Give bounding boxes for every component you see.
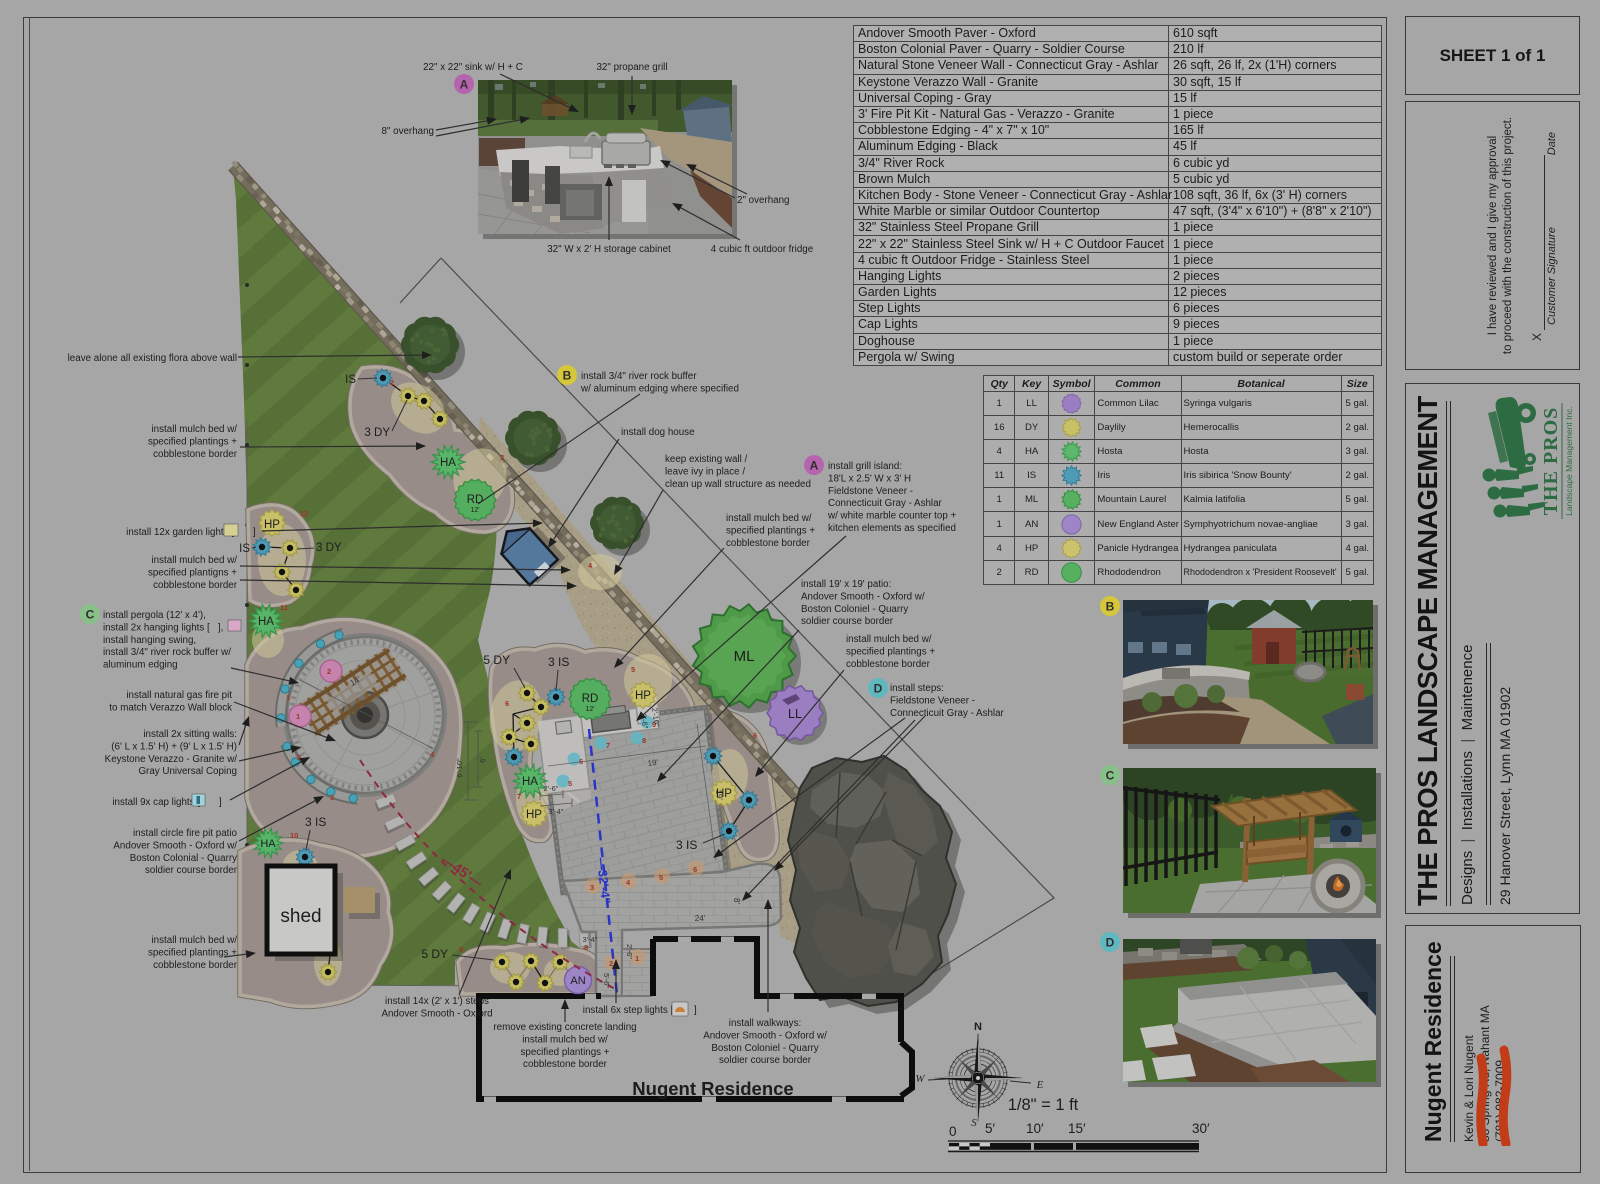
svg-text:6: 6 (693, 865, 697, 874)
svg-text:install 19' x 19' patio:: install 19' x 19' patio: (801, 579, 891, 590)
svg-text:3: 3 (330, 793, 334, 802)
svg-text:HP: HP (526, 809, 542, 821)
svg-text:install natural gas fire pit: install natural gas fire pit (126, 690, 232, 701)
svg-text:specified plantings +: specified plantings + (520, 1047, 609, 1058)
svg-text:0: 0 (949, 1124, 957, 1139)
svg-text:cobblestone border: cobblestone border (153, 449, 238, 460)
svg-text:Boston Coloniel - Quarry: Boston Coloniel - Quarry (711, 1043, 818, 1054)
svg-text:leave ivy in place /: leave ivy in place / (665, 466, 745, 477)
svg-text:24': 24' (695, 914, 706, 923)
svg-text:IS: IS (239, 543, 250, 555)
svg-text:install steps:: install steps: (890, 683, 944, 694)
svg-text:Boston Coloniel - Quarry: Boston Coloniel - Quarry (801, 604, 908, 615)
svg-text:install 3/4" river rock buffer: install 3/4" river rock buffer w/ (103, 647, 231, 658)
svg-text:6: 6 (753, 731, 757, 740)
svg-text:install 6x step lights [: install 6x step lights [ (583, 1005, 674, 1016)
svg-text:7: 7 (606, 741, 610, 750)
svg-text:install 12x garden lights [: install 12x garden lights [ (126, 527, 234, 538)
svg-text:2: 2 (297, 753, 301, 762)
svg-text:3 DY: 3 DY (316, 542, 342, 554)
svg-text:32" propane grill: 32" propane grill (596, 62, 667, 73)
svg-text:Fieldstone Veneer -: Fieldstone Veneer - (828, 486, 913, 497)
svg-text:(6' L x 1.5' H) + (9' L x 1.5': (6' L x 1.5' H) + (9' L x 1.5' H) (111, 741, 237, 752)
svg-text:RD: RD (467, 494, 484, 506)
svg-text:A: A (810, 459, 819, 473)
svg-text:9: 9 (459, 945, 463, 954)
svg-text:specified plantings +: specified plantings + (726, 525, 815, 536)
svg-text:THE PROS: THE PROS (1540, 407, 1562, 516)
svg-text:B: B (563, 369, 572, 383)
svg-text:10: 10 (290, 831, 298, 840)
svg-text:HP: HP (264, 519, 280, 531)
svg-text:Andover Smooth - Oxford: Andover Smooth - Oxford (381, 1008, 492, 1019)
svg-text:specified plantings +: specified plantings + (846, 646, 935, 657)
svg-text:cobblestone border: cobblestone border (153, 580, 238, 591)
svg-text:C: C (1106, 769, 1115, 783)
svg-text:install mulch bed w/: install mulch bed w/ (152, 424, 238, 435)
svg-text:cobblestone border: cobblestone border (846, 659, 931, 670)
svg-text:kitchen elements as specified: kitchen elements as specified (828, 523, 956, 534)
svg-text:LL: LL (788, 707, 802, 721)
svg-text:to match Verazzo Wall block: to match Verazzo Wall block (109, 702, 232, 713)
svg-text:11: 11 (280, 603, 288, 612)
svg-text:2'-6": 2'-6" (544, 784, 559, 793)
svg-text:install 9x cap lights [: install 9x cap lights [ (112, 797, 200, 808)
svg-text:3 IS: 3 IS (676, 838, 697, 852)
svg-text:cobblestone border: cobblestone border (726, 538, 811, 549)
svg-text:leave alone all existing flora: leave alone all existing flora above wal… (68, 353, 237, 364)
svg-text:S: S (971, 1117, 977, 1129)
svg-text:5: 5 (568, 779, 572, 788)
svg-text:cobblestone border: cobblestone border (153, 960, 238, 971)
svg-text:Connecticuit Gray - Ashlar: Connecticuit Gray - Ashlar (828, 498, 943, 509)
svg-text:install mulch bed w/: install mulch bed w/ (152, 935, 238, 946)
svg-text:10′: 10′ (1026, 1121, 1044, 1136)
svg-text:1: 1 (635, 954, 639, 963)
svg-text:W: W (915, 1073, 925, 1085)
svg-text:Nugent Residence: Nugent Residence (632, 1078, 793, 1099)
svg-text:D: D (874, 682, 883, 696)
svg-text:w/ aluminum edging where speci: w/ aluminum edging where specified (580, 383, 739, 394)
svg-text:3 IS: 3 IS (548, 655, 569, 669)
svg-text:5: 5 (659, 873, 663, 882)
svg-text:install mulch bed w/: install mulch bed w/ (846, 634, 932, 645)
svg-text:Boston Colonial - Quarry: Boston Colonial - Quarry (130, 853, 237, 864)
svg-text:1: 1 (286, 693, 290, 702)
svg-text:1: 1 (296, 712, 300, 721)
svg-text:install walkways:: install walkways: (729, 1018, 801, 1029)
svg-text:install dog house: install dog house (621, 427, 695, 438)
svg-text:specified plantings +: specified plantings + (148, 947, 237, 958)
svg-text:soldier course border: soldier course border (801, 616, 894, 627)
svg-text:RD: RD (582, 693, 599, 705)
svg-text:HP: HP (635, 690, 651, 702)
svg-text:6': 6' (478, 757, 487, 763)
svg-text:19': 19' (714, 789, 724, 801)
svg-text:install hanging swing,: install hanging swing, (103, 635, 196, 646)
svg-text:15′: 15′ (1068, 1121, 1086, 1136)
svg-text:remove existing concrete landi: remove existing concrete landing (493, 1022, 636, 1033)
svg-text:]: ] (219, 797, 222, 808)
svg-text:19': 19' (647, 758, 659, 768)
svg-text:6'-10": 6'-10" (455, 758, 464, 777)
svg-text:18'L x 2.5' W x 3' H: 18'L x 2.5' W x 3' H (828, 473, 911, 484)
svg-text:install 2x sitting walls:: install 2x sitting walls: (143, 729, 237, 740)
svg-text:2: 2 (390, 378, 394, 387)
svg-text:Andover Smooth - Oxford w/: Andover Smooth - Oxford w/ (113, 840, 237, 851)
svg-text:install grill island:: install grill island: (828, 461, 902, 472)
svg-text:keep existing wall /: keep existing wall / (665, 454, 748, 465)
svg-text:HA: HA (522, 776, 538, 788)
svg-text:HA: HA (258, 616, 274, 628)
svg-text:3'-4": 3'-4" (549, 807, 564, 816)
svg-text:install pergola (12' x 4'),: install pergola (12' x 4'), (103, 610, 206, 621)
svg-text:12: 12 (300, 509, 308, 518)
svg-text:3'-4": 3'-4" (583, 935, 598, 944)
svg-text:7: 7 (517, 792, 521, 801)
svg-text:3: 3 (500, 453, 504, 462)
svg-text:install 14x (2' x 1') steps: install 14x (2' x 1') steps (385, 996, 489, 1007)
svg-text:Keystone Verazzo - Granite w/: Keystone Verazzo - Granite w/ (105, 754, 238, 765)
svg-text:2: 2 (327, 667, 331, 676)
svg-text:8': 8' (732, 898, 741, 904)
svg-text:Andover Smooth - Oxford w/: Andover Smooth - Oxford w/ (703, 1030, 827, 1041)
svg-text:A: A (460, 78, 469, 92)
svg-text:aluminum edging: aluminum edging (103, 660, 178, 671)
svg-text:5'-6": 5'-6" (602, 973, 611, 988)
svg-text:3: 3 (590, 883, 594, 892)
svg-text:HA: HA (440, 457, 456, 469)
svg-text:22" x 22" sink w/ H + C: 22" x 22" sink w/ H + C (423, 62, 523, 73)
svg-text:install mulch bed w/: install mulch bed w/ (726, 513, 812, 524)
svg-text:Gray Universal Coping: Gray Universal Coping (138, 766, 237, 777)
svg-text:clean up wall structure as nee: clean up wall structure as needed (665, 479, 811, 490)
svg-text:]: ] (253, 527, 256, 538)
svg-text:Andover Smooth - Oxford w/: Andover Smooth - Oxford w/ (801, 591, 925, 602)
svg-text:12': 12' (470, 507, 479, 514)
svg-text:8" overhang: 8" overhang (381, 126, 434, 137)
svg-text:30′: 30′ (1192, 1121, 1210, 1136)
svg-text:D: D (1106, 936, 1115, 950)
svg-text:32" W x 2' H storage cabinet: 32" W x 2' H storage cabinet (547, 244, 671, 255)
svg-text:5′: 5′ (985, 1121, 996, 1136)
svg-text:soldier course border: soldier course border (719, 1055, 812, 1066)
svg-text:]: ] (694, 1005, 697, 1016)
svg-text:soldier course border: soldier course border (145, 865, 238, 876)
svg-text:w/ white marble counter top +: w/ white marble counter top + (827, 511, 957, 522)
svg-text:2'-6": 2'-6" (625, 944, 634, 959)
svg-text:3 IS: 3 IS (305, 815, 326, 829)
svg-text:shed: shed (280, 906, 321, 927)
svg-text:5 DY: 5 DY (421, 947, 448, 961)
svg-text:IS: IS (345, 374, 356, 386)
svg-text:4 cubic ft outdoor fridge: 4 cubic ft outdoor fridge (711, 244, 814, 255)
svg-text:3 DY: 3 DY (364, 427, 390, 439)
svg-text:install 3/4" river rock buffer: install 3/4" river rock buffer (581, 371, 697, 382)
svg-text:Landscape Management Inc.: Landscape Management Inc. (1564, 406, 1574, 516)
svg-text:install circle fire pit patio: install circle fire pit patio (133, 828, 238, 839)
svg-text:8: 8 (642, 736, 646, 745)
svg-text:N: N (974, 1021, 982, 1033)
svg-text:ML: ML (734, 648, 755, 665)
svg-text:specified plantigns +: specified plantigns + (148, 567, 237, 578)
svg-text:Fieldstone Veneer -: Fieldstone Veneer - (890, 695, 975, 706)
svg-text:6: 6 (505, 699, 509, 708)
svg-text:12': 12' (585, 706, 594, 713)
svg-text:8: 8 (584, 943, 588, 952)
svg-text:5 DY: 5 DY (483, 653, 510, 667)
svg-text:install mulch bed w/: install mulch bed w/ (522, 1034, 608, 1045)
svg-text:install mulch bed w/: install mulch bed w/ (152, 555, 238, 566)
svg-text:2: 2 (609, 959, 613, 968)
svg-text:HA: HA (260, 838, 276, 850)
svg-text:1/8" = 1 ft: 1/8" = 1 ft (1008, 1096, 1079, 1114)
svg-text:install 2x hanging lights [: install 2x hanging lights [ ], (103, 622, 223, 633)
svg-text:B: B (1106, 600, 1115, 614)
svg-text:E: E (1036, 1079, 1044, 1091)
svg-text:cobblestone border: cobblestone border (523, 1059, 608, 1070)
svg-text:specified plantings +: specified plantings + (148, 436, 237, 447)
svg-text:5: 5 (631, 665, 635, 674)
svg-text:Connecticuit Gray - Ashlar: Connecticuit Gray - Ashlar (890, 708, 1005, 719)
svg-text:AN: AN (570, 975, 585, 987)
svg-text:C: C (86, 608, 95, 622)
svg-text:2" overhang: 2" overhang (737, 195, 790, 206)
